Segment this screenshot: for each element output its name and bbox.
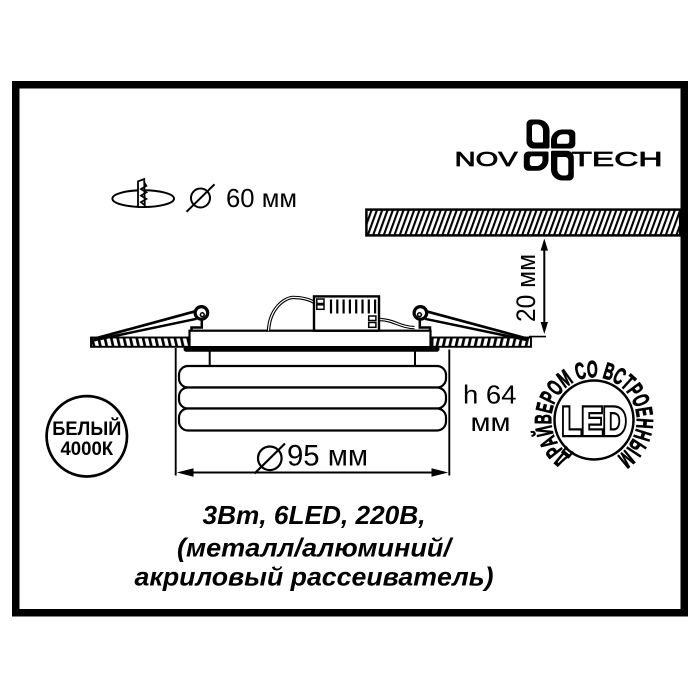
svg-text:мм: мм [471, 407, 511, 437]
svg-text:БЕЛЫЙ: БЕЛЫЙ [52, 416, 121, 440]
svg-text:60 мм: 60 мм [226, 183, 297, 213]
svg-text:3Вm, 6LED, 220В,: 3Вm, 6LED, 220В, [203, 500, 426, 530]
svg-text:(меmалл/алюминий/: (меmалл/алюминий/ [177, 533, 454, 563]
svg-text:20 мм: 20 мм [511, 254, 541, 322]
svg-text:95 мм: 95 мм [287, 440, 368, 473]
svg-text:4000К: 4000К [60, 438, 113, 460]
svg-text:акриловый рассеиваmель): акриловый рассеиваmель) [135, 562, 494, 592]
svg-text:NOV: NOV [455, 149, 519, 171]
svg-text:LED: LED [562, 400, 627, 444]
svg-text:h 64: h 64 [463, 380, 517, 410]
svg-text:TECH: TECH [572, 149, 663, 171]
